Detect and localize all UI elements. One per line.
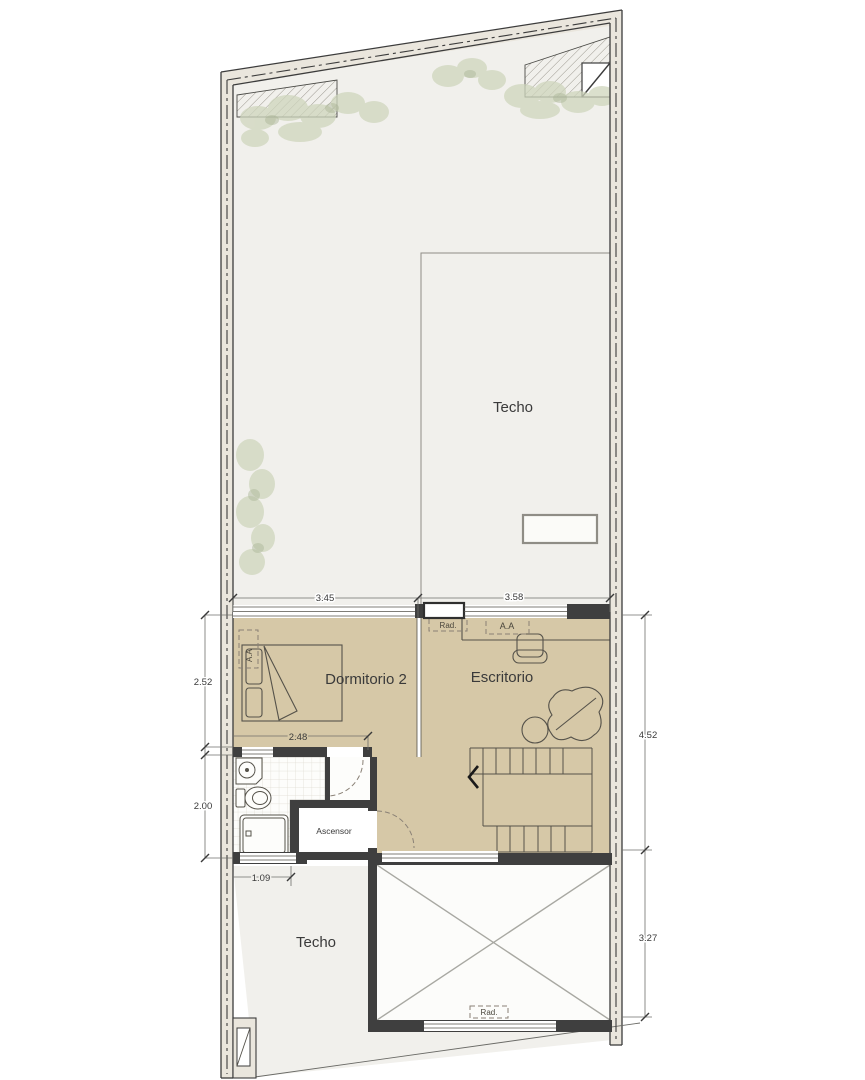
toilet — [236, 787, 271, 809]
shaft-bottom-left — [233, 1018, 256, 1078]
label-escritorio: Escritorio — [471, 669, 534, 686]
dim-3-45: 3.45 — [316, 593, 335, 604]
rooms-north-wall — [233, 603, 610, 619]
hall-area — [330, 757, 370, 800]
floor-plan-drawing: A.A A.A Rad. — [0, 0, 865, 1080]
radiator-bottom-label: Rad. — [481, 1008, 498, 1017]
label-techo-top: Techo — [493, 399, 533, 416]
sink — [236, 758, 262, 784]
label-dormitorio: Dormitorio 2 — [325, 671, 407, 688]
dim-1-09: 1.09 — [252, 873, 271, 884]
radiator-top-label: Rad. — [440, 621, 457, 630]
dim-2-48: 2.48 — [289, 732, 308, 743]
roof-top — [421, 253, 610, 612]
floor-plan-page: A.A A.A Rad. — [0, 0, 865, 1080]
window-frame — [424, 603, 464, 618]
dim-2-52: 2.52 — [194, 677, 213, 688]
label-techo-bottom: Techo — [296, 934, 336, 951]
dim-3-27: 3.27 — [639, 933, 658, 944]
void-area — [377, 865, 610, 1020]
partition-wall — [417, 618, 421, 757]
shower — [240, 815, 288, 856]
skylight — [523, 515, 597, 543]
dim-3-58: 3.58 — [505, 592, 524, 603]
dim-4-52: 4.52 — [639, 730, 658, 741]
elevator-label: Ascensor — [316, 826, 352, 836]
ac-escritorio-label: A.A — [500, 621, 515, 631]
dim-2-00: 2.00 — [194, 801, 213, 812]
ac-dormitorio-label: A.A — [245, 648, 254, 662]
